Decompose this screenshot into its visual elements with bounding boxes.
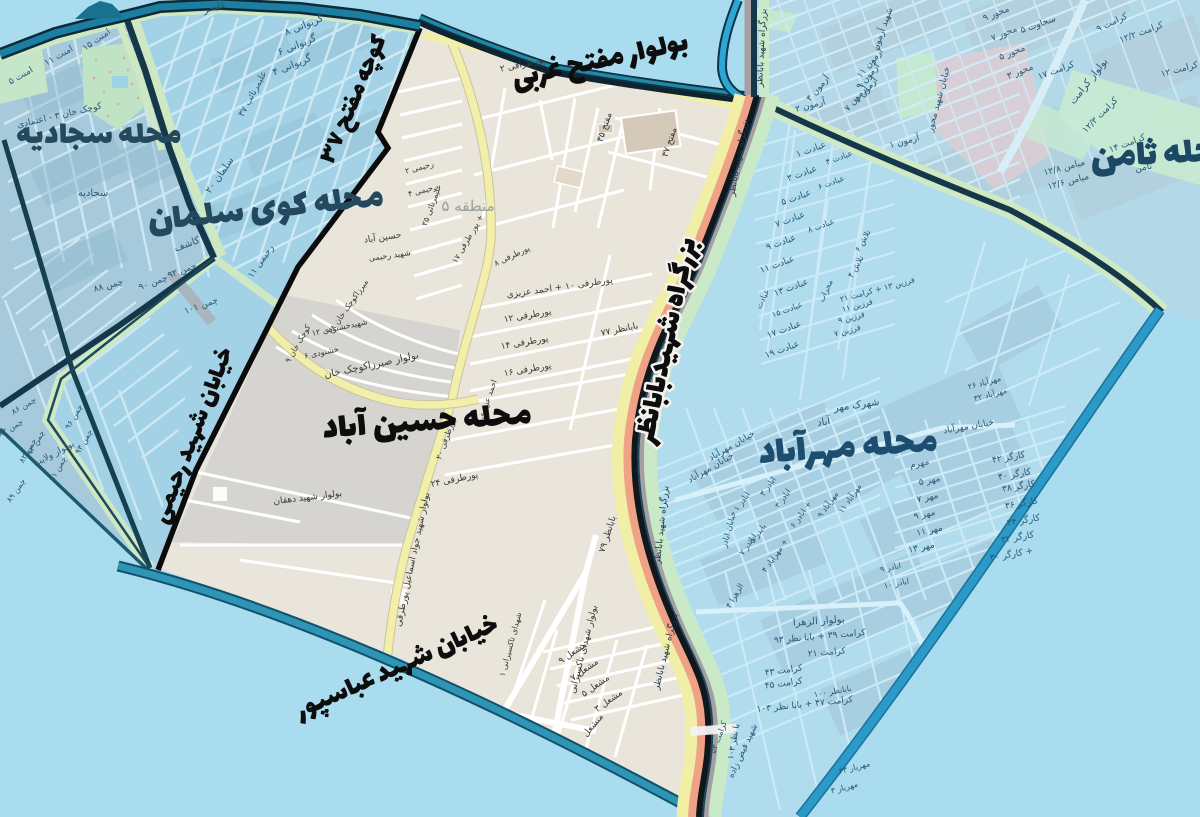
svg-text:سجادیه: سجادیه [78,188,108,199]
svg-text:منطقه ۵: منطقه ۵ [441,197,494,215]
